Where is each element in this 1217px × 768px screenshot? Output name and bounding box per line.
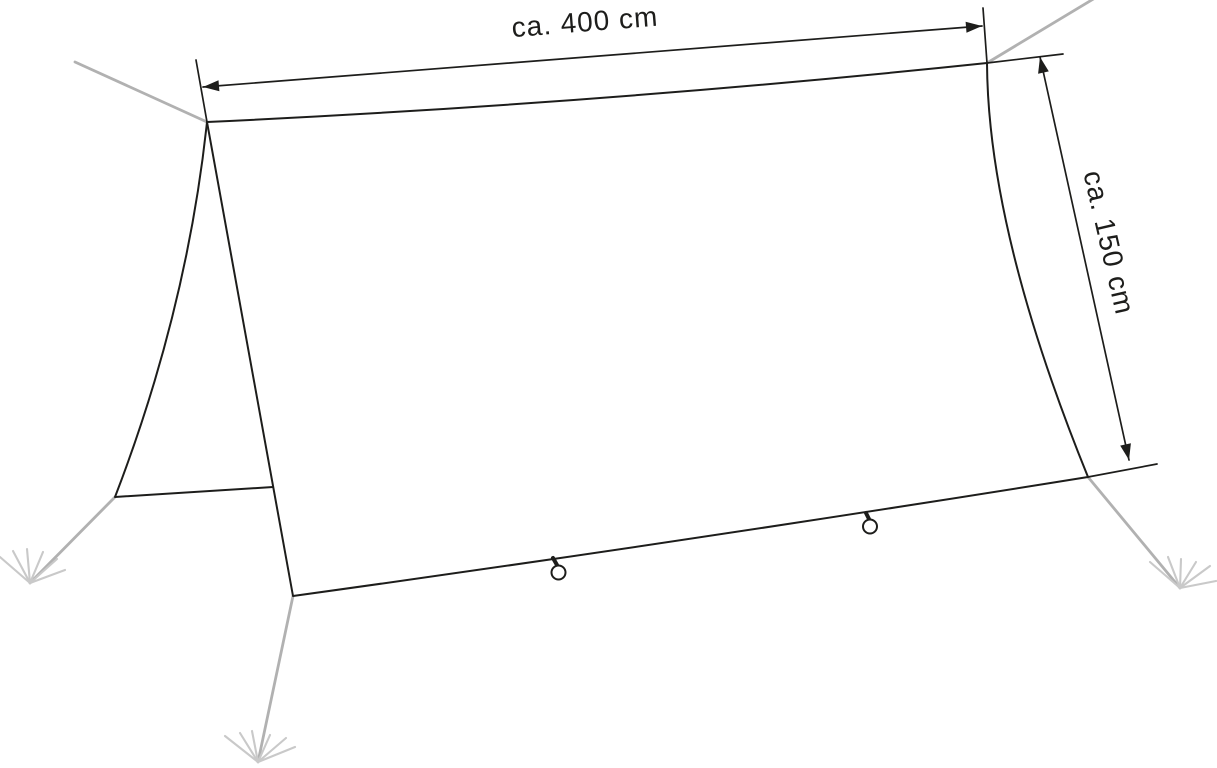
depth-dimension-label: ca. 150 cm <box>1077 167 1140 317</box>
tarp-dimension-diagram: ca. 400 cm ca. 150 cm <box>0 0 1217 768</box>
guy-line-top-left <box>75 62 207 122</box>
tarp-side-panel <box>115 122 273 497</box>
guy-line-bottom-right <box>1088 477 1180 588</box>
stake-marks-front-left <box>0 549 65 583</box>
extension-line-left <box>196 60 207 122</box>
tie-out-loop-left <box>552 558 566 580</box>
stake-spike <box>1180 559 1181 588</box>
guy-line-top-right <box>987 0 1095 63</box>
diagram-canvas: ca. 400 cm ca. 150 cm <box>0 0 1217 768</box>
guy-line-front-bottom <box>258 596 293 762</box>
width-dimension-label: ca. 400 cm <box>510 1 659 43</box>
guy-line-front-left <box>30 497 115 583</box>
loop-tab <box>866 513 869 519</box>
extension-line-right <box>983 8 987 63</box>
arrowhead-right <box>966 22 982 33</box>
guy-lines <box>30 0 1180 762</box>
stake-spike <box>0 557 30 583</box>
tarp <box>115 63 1088 596</box>
loop-ring <box>552 566 566 580</box>
extension-line-bottom <box>1088 464 1157 477</box>
stake-spike <box>1180 562 1196 588</box>
loop-ring <box>863 520 877 534</box>
arrowhead-left <box>203 80 219 91</box>
dimension-width: ca. 400 cm <box>196 1 987 122</box>
tie-out-loop-right <box>863 513 877 534</box>
tarp-main-panel <box>207 63 1088 596</box>
dimension-depth: ca. 150 cm <box>987 54 1157 477</box>
